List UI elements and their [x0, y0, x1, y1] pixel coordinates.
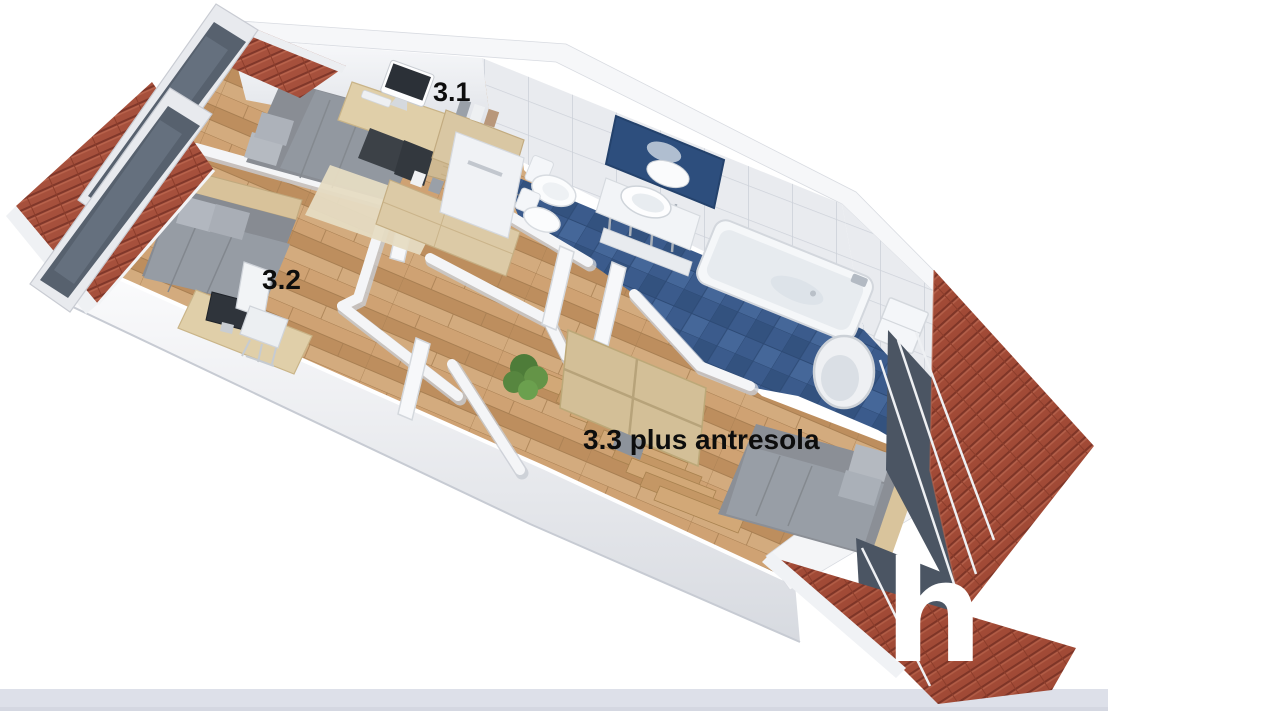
- floorplan-screenshot: 3.1 3.2 3.3 plus antresola h: [0, 0, 1280, 720]
- room-label-3-1: 3.1: [433, 79, 471, 106]
- wicker-chair: [814, 336, 874, 408]
- watermark-h: h: [884, 544, 984, 684]
- room-label-3-2: 3.2: [262, 266, 301, 294]
- floorplan-render: [0, 0, 1280, 720]
- room-label-3-3: 3.3 plus antresola: [583, 426, 820, 454]
